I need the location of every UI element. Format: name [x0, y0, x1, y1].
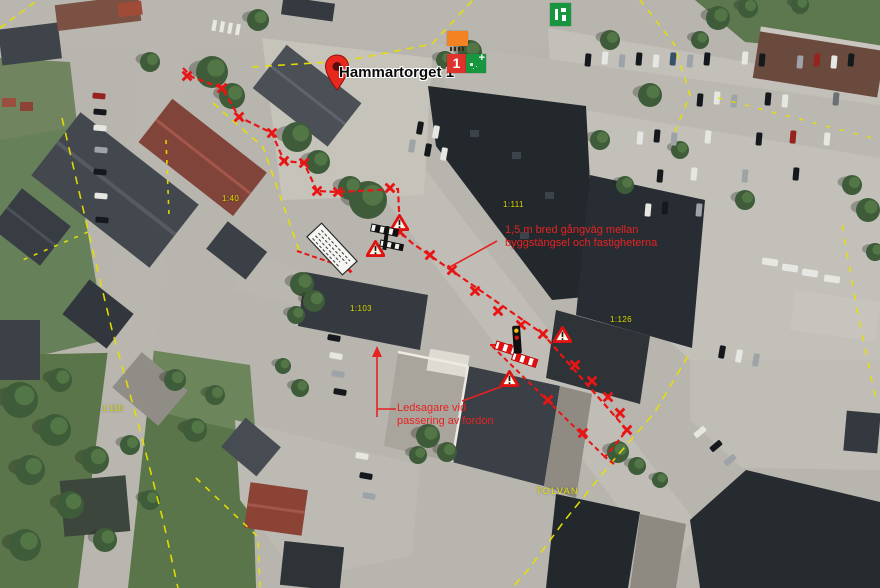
- warning-triangle-icon: [391, 215, 408, 229]
- note-leader-lines: [377, 241, 506, 417]
- escort-note-line1: Ledsagare vid: [397, 402, 494, 415]
- barrier-x-mark: [616, 409, 625, 418]
- glyph-bar: [555, 9, 558, 20]
- plus-icon: +: [479, 52, 485, 64]
- escort-note-line2: passering av fordon: [397, 415, 494, 428]
- barrier-x-mark: [426, 251, 435, 260]
- barrier-x-marks: [183, 72, 632, 438]
- parcel-label: 1:111: [503, 200, 524, 209]
- area-marker-orange[interactable]: [447, 31, 468, 46]
- barrier-x-mark: [571, 361, 580, 370]
- barrier-x-mark: [235, 113, 244, 122]
- plan-overlay: [0, 0, 880, 588]
- escort-note: Ledsagare vid passering av fordon: [397, 402, 494, 428]
- barrier-x-mark: [623, 426, 632, 435]
- block-name-label: TOLVAN: [536, 486, 579, 496]
- warning-triangle-icon: [554, 327, 571, 341]
- cluster-marker[interactable]: 1: [447, 54, 466, 73]
- barrier-x-mark: [386, 184, 395, 193]
- barrier-x-mark: [448, 266, 457, 275]
- barrier-x-mark: [268, 129, 277, 138]
- barrier-x-mark: [588, 377, 597, 386]
- pin-label: Hammartorget 1: [339, 64, 454, 81]
- walkway-note: 1,5 m bred gångväg mellan byggstängsel o…: [505, 224, 657, 250]
- parcel-label: 1:126: [610, 315, 632, 324]
- barrier-x-mark: [604, 393, 613, 402]
- barrier-x-mark: [539, 330, 548, 339]
- cluster-count-label: 1: [453, 55, 461, 71]
- parcel-label: 1:40: [222, 194, 239, 203]
- map-canvas[interactable]: Hammartorget 1 1 + 1,5 m bred gångväg me…: [0, 0, 880, 588]
- walkway-note-line2: byggstängsel och fastigheterna: [505, 237, 657, 250]
- glyph-square: [562, 15, 566, 21]
- sparkle-icon: [470, 63, 473, 66]
- marker-caption-marks: [450, 47, 464, 51]
- street-barrier-icon: [512, 352, 538, 367]
- walkway-note-line1: 1,5 m bred gångväg mellan: [505, 224, 657, 237]
- barrier-x-mark: [494, 307, 503, 316]
- warning-triangle-icon: [501, 371, 518, 385]
- barrier-x-mark: [544, 396, 553, 405]
- glyph-square: [561, 8, 566, 12]
- barrier-x-mark: [313, 187, 322, 196]
- facility-marker[interactable]: [550, 3, 571, 26]
- property-boundary-lines: [0, 0, 880, 588]
- expand-marker[interactable]: +: [466, 54, 486, 73]
- parcel-label: 1:103: [350, 304, 372, 313]
- info-sign: [307, 223, 357, 275]
- parcel-label: 1:110: [102, 404, 123, 413]
- leader-arrowhead: [372, 346, 382, 357]
